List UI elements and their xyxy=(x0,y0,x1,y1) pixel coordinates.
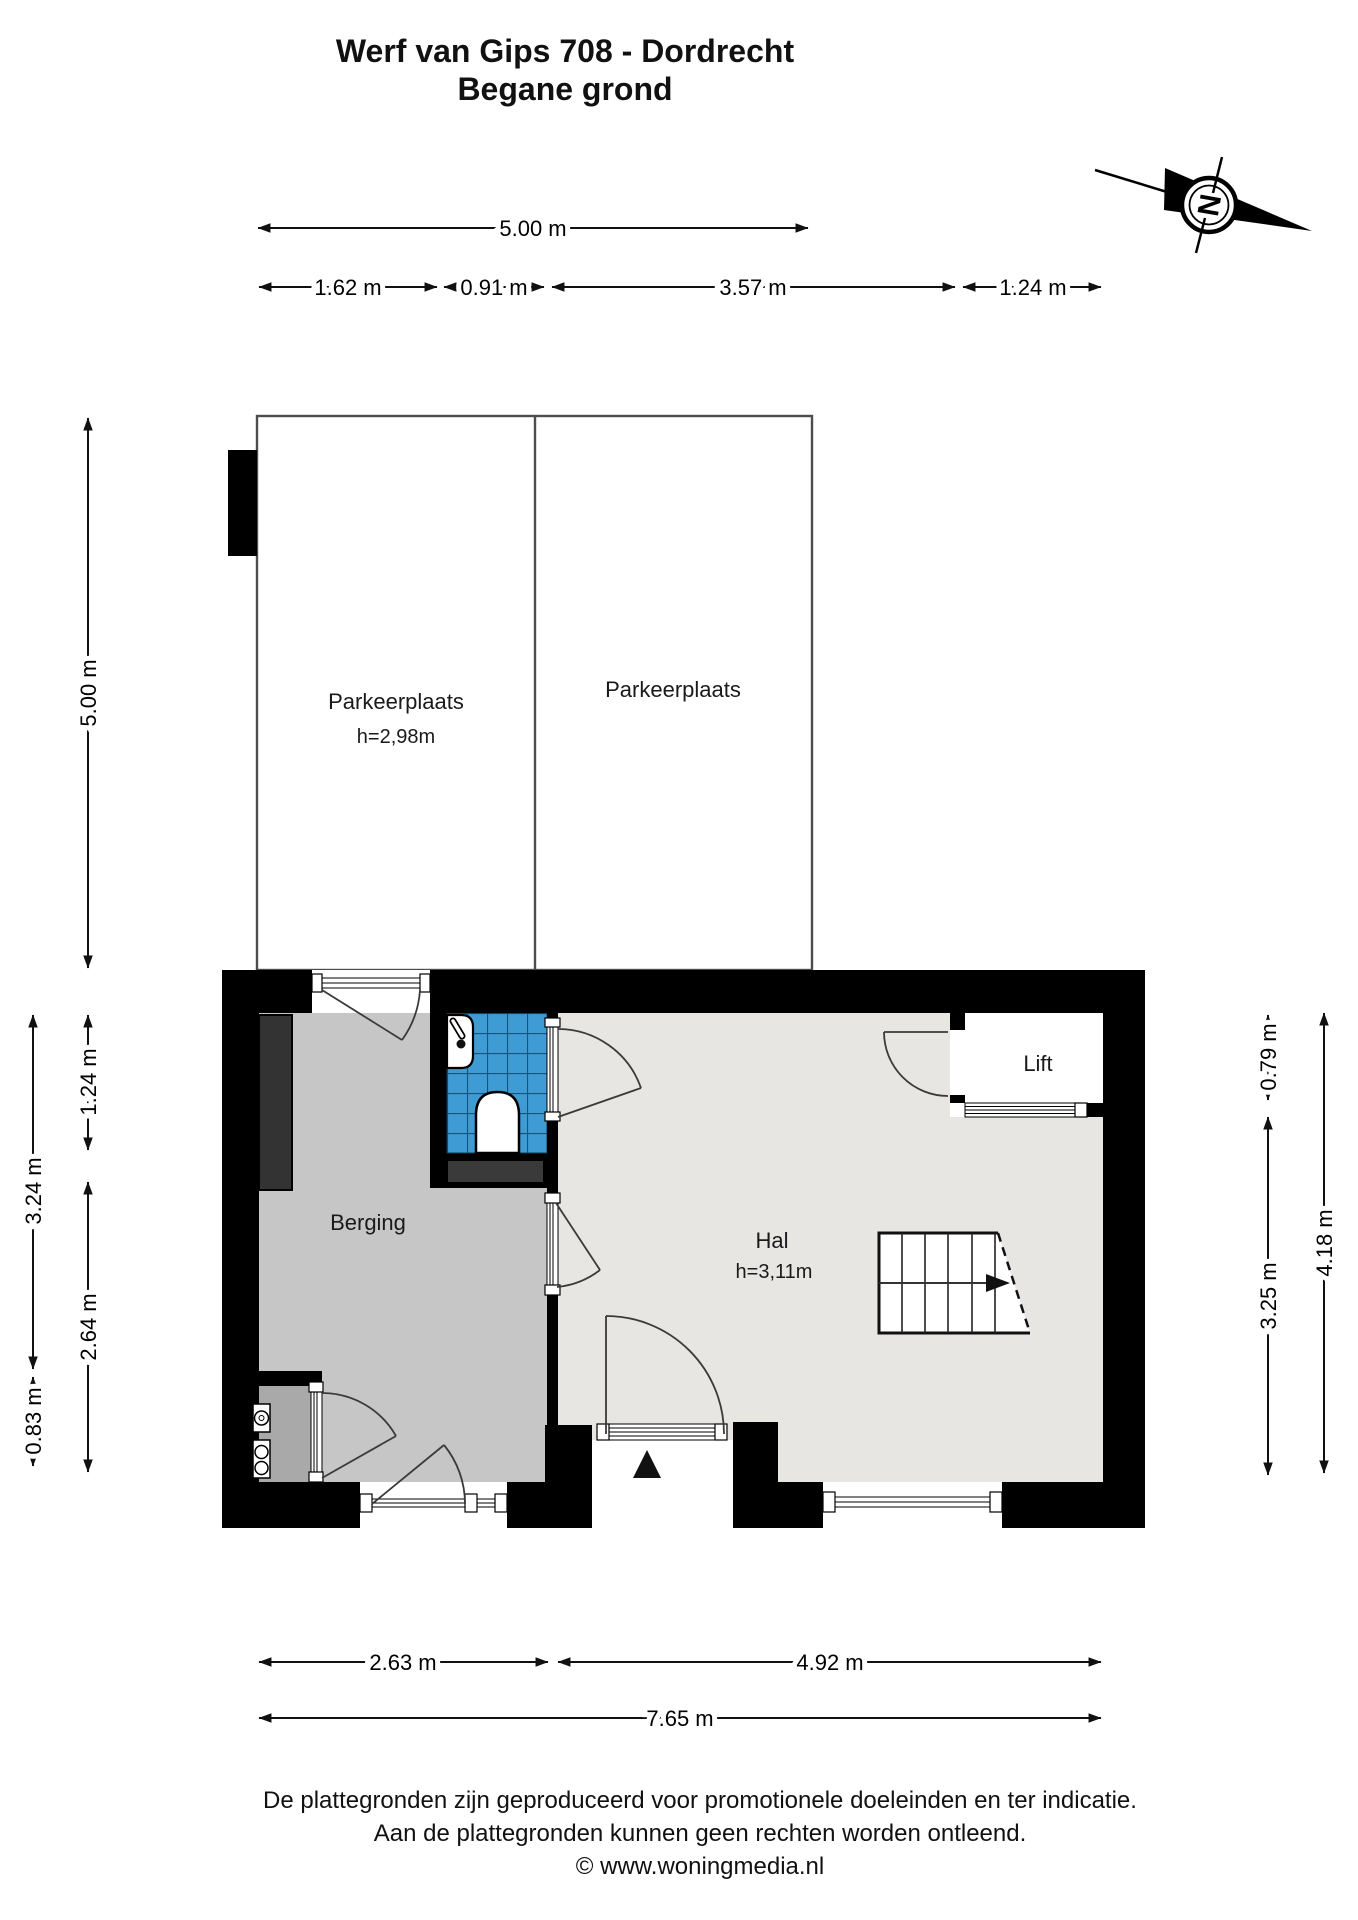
wall-segment xyxy=(228,450,257,556)
svg-text:1.24 m: 1.24 m xyxy=(76,1048,101,1115)
room-label-lift: Lift xyxy=(1023,1051,1052,1076)
svg-text:0.79 m: 0.79 m xyxy=(1256,1023,1281,1090)
room-label-parking-left: Parkeerplaats xyxy=(328,689,464,714)
footer-disclaimer-line1: De plattegronden zijn geproduceerd voor … xyxy=(263,1787,1137,1814)
door-jamb xyxy=(312,974,322,992)
door-jamb xyxy=(715,1424,727,1440)
hal-window xyxy=(823,1488,1002,1516)
svg-text:5.00 m: 5.00 m xyxy=(76,659,101,726)
wall-segment xyxy=(547,1285,558,1425)
svg-text:3.25 m: 3.25 m xyxy=(1256,1262,1281,1329)
sink-icon xyxy=(447,1015,473,1068)
wall-segment xyxy=(1103,970,1145,1528)
door-jamb xyxy=(545,1018,560,1027)
svg-text:0.83 m: 0.83 m xyxy=(21,1387,46,1454)
door-jamb xyxy=(545,1112,560,1121)
door-jamb xyxy=(1075,1103,1087,1117)
floorplan-page: Werf van Gips 708 - Dordrecht Begane gro… xyxy=(0,0,1358,1920)
door-jamb xyxy=(495,1494,507,1512)
dim-right-1: 0.79 m xyxy=(1256,1015,1281,1100)
door-jamb xyxy=(545,1193,560,1203)
page-title: Werf van Gips 708 - Dordrecht xyxy=(336,33,795,69)
room-label-parking-right: Parkeerplaats xyxy=(605,677,741,702)
page-subtitle: Begane grond xyxy=(457,71,672,107)
wall-segment xyxy=(1002,1482,1103,1528)
wall-segment xyxy=(547,1117,558,1153)
floorplan-canvas: Werf van Gips 708 - Dordrecht Begane gro… xyxy=(0,0,1358,1920)
door-opening xyxy=(312,970,430,1013)
wall-segment xyxy=(545,1425,592,1528)
svg-text:0.91 m: 0.91 m xyxy=(460,275,527,300)
svg-text:7.65 m: 7.65 m xyxy=(646,1706,713,1731)
svg-text:4.92 m: 4.92 m xyxy=(796,1650,863,1675)
window-jamb xyxy=(823,1492,835,1512)
wall-segment xyxy=(222,1482,360,1528)
svg-text:1.24 m: 1.24 m xyxy=(999,275,1066,300)
wall-segment xyxy=(950,1095,965,1103)
entrance-recess xyxy=(592,1440,733,1528)
berging-shaft-fixture xyxy=(259,1015,292,1190)
door-jamb xyxy=(309,1472,323,1482)
svg-text:4.18 m: 4.18 m xyxy=(1312,1209,1337,1276)
svg-text:2.64 m: 2.64 m xyxy=(76,1293,101,1360)
wall-segment xyxy=(1087,1103,1103,1117)
svg-text:2.63 m: 2.63 m xyxy=(369,1650,436,1675)
footer-disclaimer-line2: Aan de plattegronden kunnen geen rechten… xyxy=(374,1820,1027,1847)
wall-segment xyxy=(778,1482,823,1528)
room-height-parking-left: h=2,98m xyxy=(357,726,435,748)
door-jamb xyxy=(465,1494,477,1512)
svg-text:1.62 m: 1.62 m xyxy=(314,275,381,300)
door-jamb xyxy=(420,974,430,992)
footer-copyright: © www.woningmedia.nl xyxy=(576,1853,824,1880)
wall-segment xyxy=(733,1422,778,1528)
toilet-room xyxy=(430,1013,558,1188)
toilet-shelf xyxy=(448,1161,543,1182)
door-jamb xyxy=(360,1494,372,1512)
wall-segment xyxy=(430,970,552,1013)
svg-text:3.57 m: 3.57 m xyxy=(719,275,786,300)
room-label-hal: Hal xyxy=(755,1228,788,1253)
wall-segment xyxy=(552,970,1145,1013)
svg-text:3.24 m: 3.24 m xyxy=(21,1157,46,1224)
wall-segment xyxy=(507,1482,547,1528)
toilet-bowl-icon xyxy=(476,1092,519,1153)
room-label-berging: Berging xyxy=(330,1210,406,1235)
door-jamb xyxy=(309,1382,323,1392)
svg-text:5.00 m: 5.00 m xyxy=(499,216,566,241)
dim-left-outer-2: 0.83 m xyxy=(21,1377,46,1466)
window-jamb xyxy=(990,1492,1002,1512)
utility-meters-icon xyxy=(253,1404,270,1478)
room-height-hal: h=3,11m xyxy=(736,1261,813,1283)
wall-segment xyxy=(950,1013,965,1030)
door-jamb xyxy=(597,1424,609,1440)
